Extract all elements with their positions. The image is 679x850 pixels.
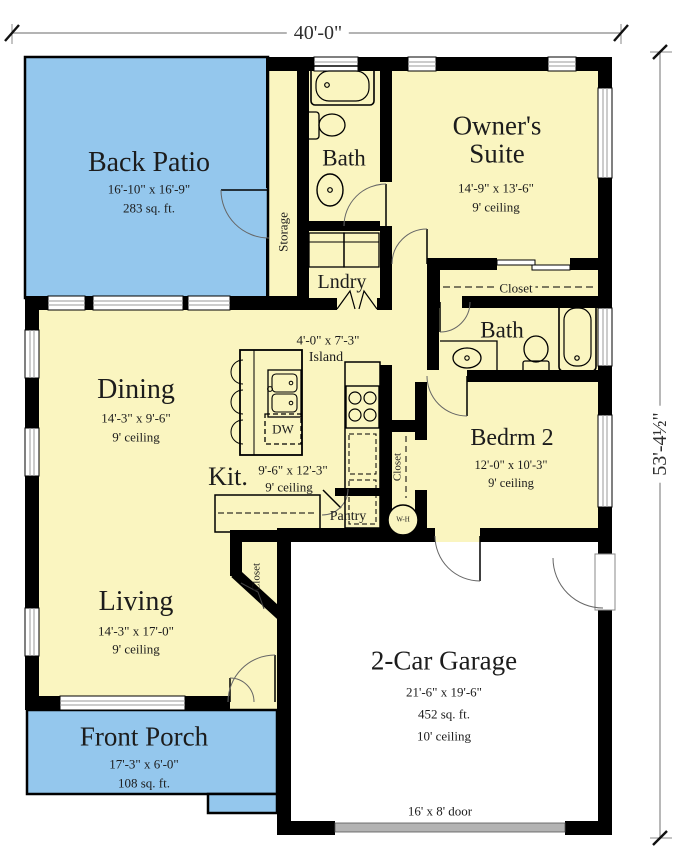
dining-ceiling: 9' ceiling [112, 431, 159, 444]
garage-name: 2-Car Garage [371, 648, 517, 675]
bath2-label: Bath [480, 319, 523, 342]
owners-suite-size: 14'-9" x 13'-6" [458, 182, 534, 195]
window [314, 57, 358, 71]
bath1-label: Bath [322, 147, 365, 170]
overall-depth-dimension: 53'-4½" [650, 405, 670, 482]
window [598, 415, 612, 507]
overall-width-dimension: 40'-0" [287, 23, 349, 43]
owners-closet-label: Closet [496, 282, 535, 295]
garage-door-label: 16' x 8' door [408, 805, 472, 818]
pantry-label: Pantry [330, 510, 367, 524]
porch-step [208, 794, 277, 813]
living-size: 14'-3" x 17'-0" [98, 625, 174, 638]
kitchen-ceiling: 9' ceiling [265, 481, 312, 494]
garage-ceiling: 10' ceiling [417, 730, 471, 743]
garage-floor [291, 542, 598, 821]
front-porch-name: Front Porch [80, 724, 208, 751]
water-heater-label: W-H [396, 517, 410, 524]
garage-overhead-door [335, 823, 565, 832]
dining-name: Dining [97, 376, 175, 404]
window [25, 428, 39, 476]
storage-label: Storage [277, 212, 290, 252]
dishwasher-label: DW [272, 423, 294, 436]
laundry-label: Lndry [318, 272, 367, 292]
window [60, 696, 185, 710]
window [25, 608, 39, 656]
bedroom2-size: 12'-0" x 10'-3" [474, 459, 547, 472]
window [48, 296, 85, 310]
window [598, 308, 612, 366]
floor-plan: 40'-0" 53'-4½" Back Patio 16'-10" x 16'-… [0, 0, 679, 850]
bedroom2-closet-label: Closet [393, 450, 404, 484]
bedroom2-ceiling: 9' ceiling [488, 477, 534, 490]
owners-suite-ceiling: 9' ceiling [472, 201, 519, 214]
front-porch-size: 17'-3" x 6'-0" [109, 758, 178, 771]
entry-closet-label: Closet [252, 563, 263, 591]
owners-suite-name: Owner's Suite [431, 112, 563, 167]
island-name: Island [309, 351, 343, 365]
window [598, 88, 612, 178]
window [548, 57, 576, 71]
dining-size: 14'-3" x 9'-6" [101, 412, 170, 425]
back-patio-area: 283 sq. ft. [123, 202, 175, 215]
bedroom2-name: Bedrm 2 [470, 426, 553, 450]
back-patio-size: 16'-10" x 16'-9" [108, 183, 190, 196]
kitchen-name: Kit. [208, 464, 248, 490]
living-ceiling: 9' ceiling [112, 643, 159, 656]
island-size: 4'-0" x 7'-3" [297, 334, 360, 347]
window [25, 330, 39, 378]
front-porch-area: 108 sq. ft. [118, 777, 170, 790]
back-patio-name: Back Patio [88, 149, 210, 177]
window [93, 296, 183, 310]
window [188, 296, 230, 310]
living-name: Living [99, 588, 174, 616]
garage-size: 21'-6" x 19'-6" [406, 686, 482, 699]
garage-area: 452 sq. ft. [418, 708, 470, 721]
kitchen-size: 9'-6" x 12'-3" [258, 464, 327, 477]
window [408, 57, 436, 71]
